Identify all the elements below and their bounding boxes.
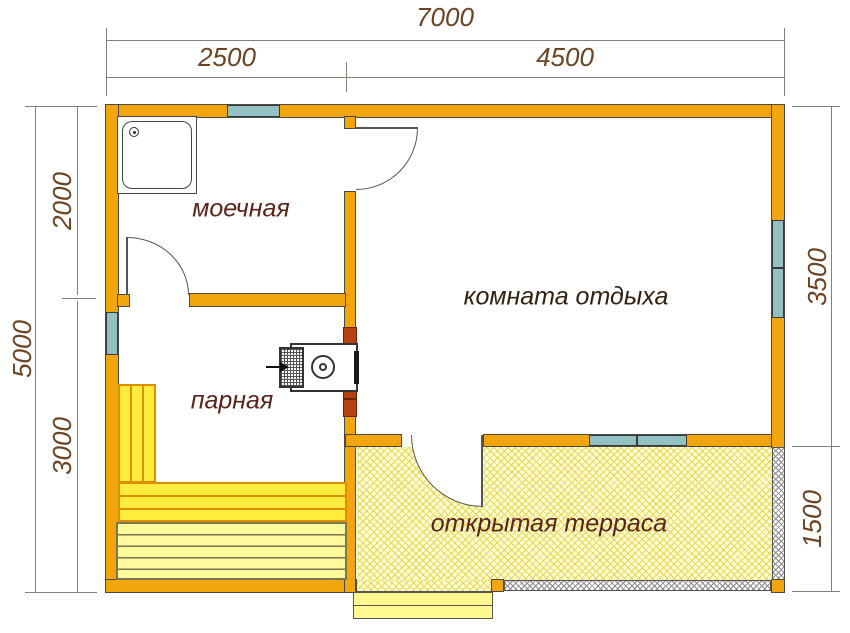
terrace-post-middle (491, 579, 504, 592)
stove-feed-arrow-head (280, 362, 289, 372)
wall-interior-horizontal (189, 293, 346, 307)
dim-label-right-top: 3500 (804, 248, 830, 306)
door-arc-washroom-restroom (356, 128, 418, 190)
dim-ext-top-right (784, 28, 785, 96)
dim-ext-right-top (792, 106, 840, 107)
dim-ext-right-bottom (792, 591, 840, 592)
dim-ext-left-middle (62, 298, 96, 299)
dim-label-height-total: 5000 (9, 320, 35, 378)
terrace-railing-bottom (504, 580, 771, 591)
room-label-washroom: моечная (192, 197, 290, 222)
door-leaf-restroom-terrace (481, 435, 483, 507)
wall-restroom-bottom-stub (345, 434, 402, 447)
wall-interior-door-post (344, 116, 356, 129)
stove-firebox-door (354, 351, 359, 384)
window-right-lower (772, 268, 784, 318)
dim-ext-right-middle (792, 446, 840, 447)
wall-top (105, 104, 785, 118)
shower-tray (117, 116, 197, 194)
terrace-railing-right (772, 447, 785, 580)
dim-label-right-bottom: 1500 (799, 490, 825, 548)
room-label-terrace: открытая терраса (431, 512, 667, 537)
dim-label-height-top: 2000 (49, 172, 75, 230)
door-leaf-washroom-restroom (356, 127, 418, 129)
terrace-step-divider (354, 605, 492, 606)
dim-ext-top-left (106, 28, 107, 96)
dim-label-width-right: 4500 (536, 44, 594, 70)
room-label-steam-room: парная (191, 389, 274, 414)
dim-line-right-bottom (831, 447, 832, 592)
wall-left-door-post (117, 294, 130, 307)
dim-label-width-left: 2500 (198, 44, 256, 70)
window-bottom-left (589, 435, 637, 446)
door-arc-washroom-steamroom (127, 237, 189, 295)
dim-line-height-top (77, 107, 78, 295)
dim-line-width-total (107, 40, 784, 41)
window-top (227, 105, 280, 117)
bench-vertical (118, 384, 156, 483)
room-label-rest-room: комната отдыха (464, 285, 669, 310)
terrace-steps (353, 592, 493, 619)
dim-line-width-segments (107, 77, 784, 78)
bench-lower-tier (116, 522, 347, 580)
shower-drain-center (133, 131, 136, 134)
dim-label-width-total: 7000 (416, 4, 474, 30)
floor-plan: моечная парная комната отдыха открытая т… (0, 0, 850, 633)
terrace-post-corner (771, 579, 785, 593)
window-bottom-right (637, 435, 687, 446)
wall-bottom-sauna (105, 579, 357, 593)
stove-burner-inner (319, 363, 327, 371)
dim-label-height-bottom: 3000 (49, 417, 75, 475)
dim-ext-left-bottom (25, 592, 97, 593)
door-leaf-washroom-steamroom (126, 237, 128, 295)
window-left (106, 312, 118, 355)
dim-line-height-bottom (77, 301, 78, 592)
bench-upper-tier (118, 482, 347, 522)
window-right-upper (772, 220, 784, 268)
terrace-floor-edge (357, 580, 491, 592)
